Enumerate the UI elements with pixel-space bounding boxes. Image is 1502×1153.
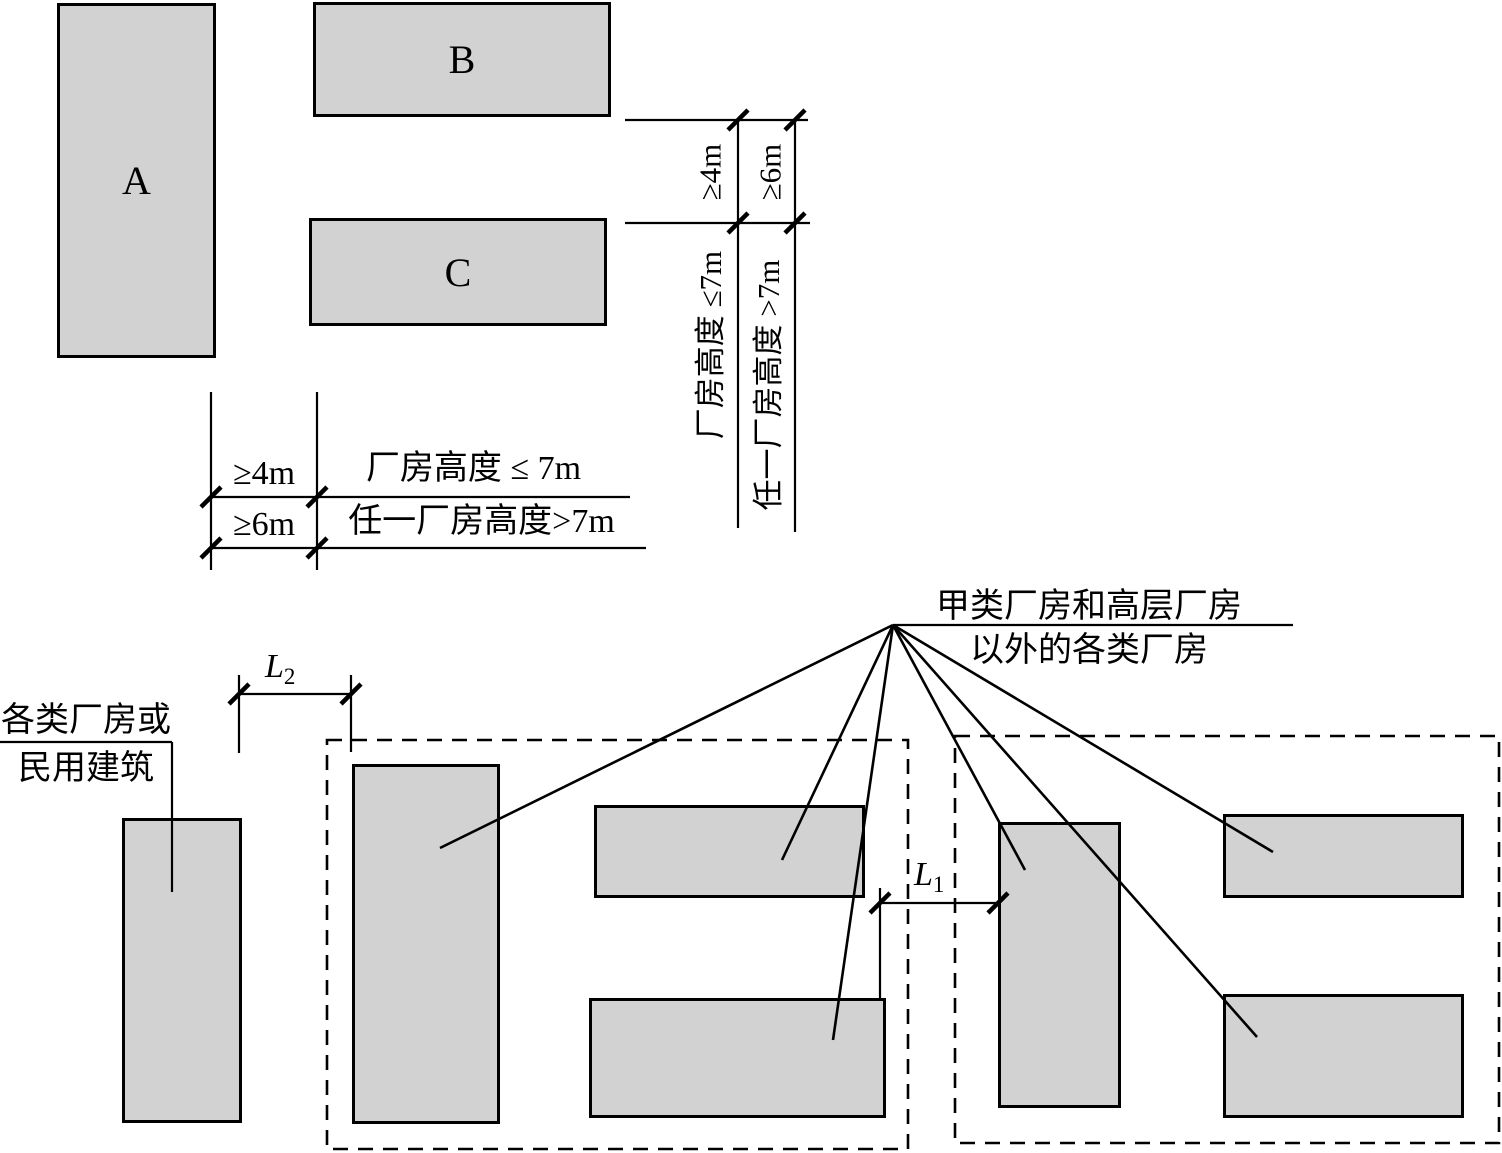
box1-tall-building xyxy=(352,764,500,1124)
box2-top-building xyxy=(1223,814,1464,898)
factory-group-label-line1: 甲类厂房和高层厂房 xyxy=(885,586,1293,629)
building-b: B xyxy=(313,2,611,117)
building-civil xyxy=(122,818,242,1123)
legend-row1-spacing: ≥4m xyxy=(211,453,317,496)
l1-label-sub: 1 xyxy=(933,872,945,897)
civil-building-label-line1: 各类厂房或 xyxy=(0,700,172,743)
building-c: C xyxy=(309,218,607,326)
building-a: A xyxy=(57,3,216,358)
legend-row1-condition: 厂房高度 ≤ 7m xyxy=(317,448,630,491)
building-a-label: A xyxy=(122,157,151,204)
dim-4m-condition: 厂房高度 ≤7m xyxy=(694,192,728,498)
l2-label: L2 xyxy=(265,648,295,690)
dim-6m-condition: 任一厂房高度 >7m xyxy=(752,232,786,538)
building-c-label: C xyxy=(445,249,472,296)
l1-dimension xyxy=(878,888,998,998)
legend-row2-spacing: ≥6m xyxy=(211,504,317,547)
l2-label-sub: 2 xyxy=(284,664,296,689)
box1-bottom-building xyxy=(589,998,886,1118)
factory-spacing-diagram: A B C xyxy=(0,0,1502,1153)
box1-top-building xyxy=(594,805,865,898)
box2-bottom-building xyxy=(1223,994,1464,1118)
l2-label-base: L xyxy=(265,648,284,685)
civil-building-label-line2: 民用建筑 xyxy=(0,748,172,791)
l1-label: L1 xyxy=(914,856,944,898)
legend-row2-condition: 任一厂房高度>7m xyxy=(317,501,646,544)
dim-6m-value: ≥6m xyxy=(754,121,788,224)
building-b-label: B xyxy=(449,36,476,83)
box2-tall-building xyxy=(998,822,1121,1108)
factory-group-label-line2: 以外的各类厂房 xyxy=(885,630,1293,673)
l1-label-base: L xyxy=(914,856,933,893)
